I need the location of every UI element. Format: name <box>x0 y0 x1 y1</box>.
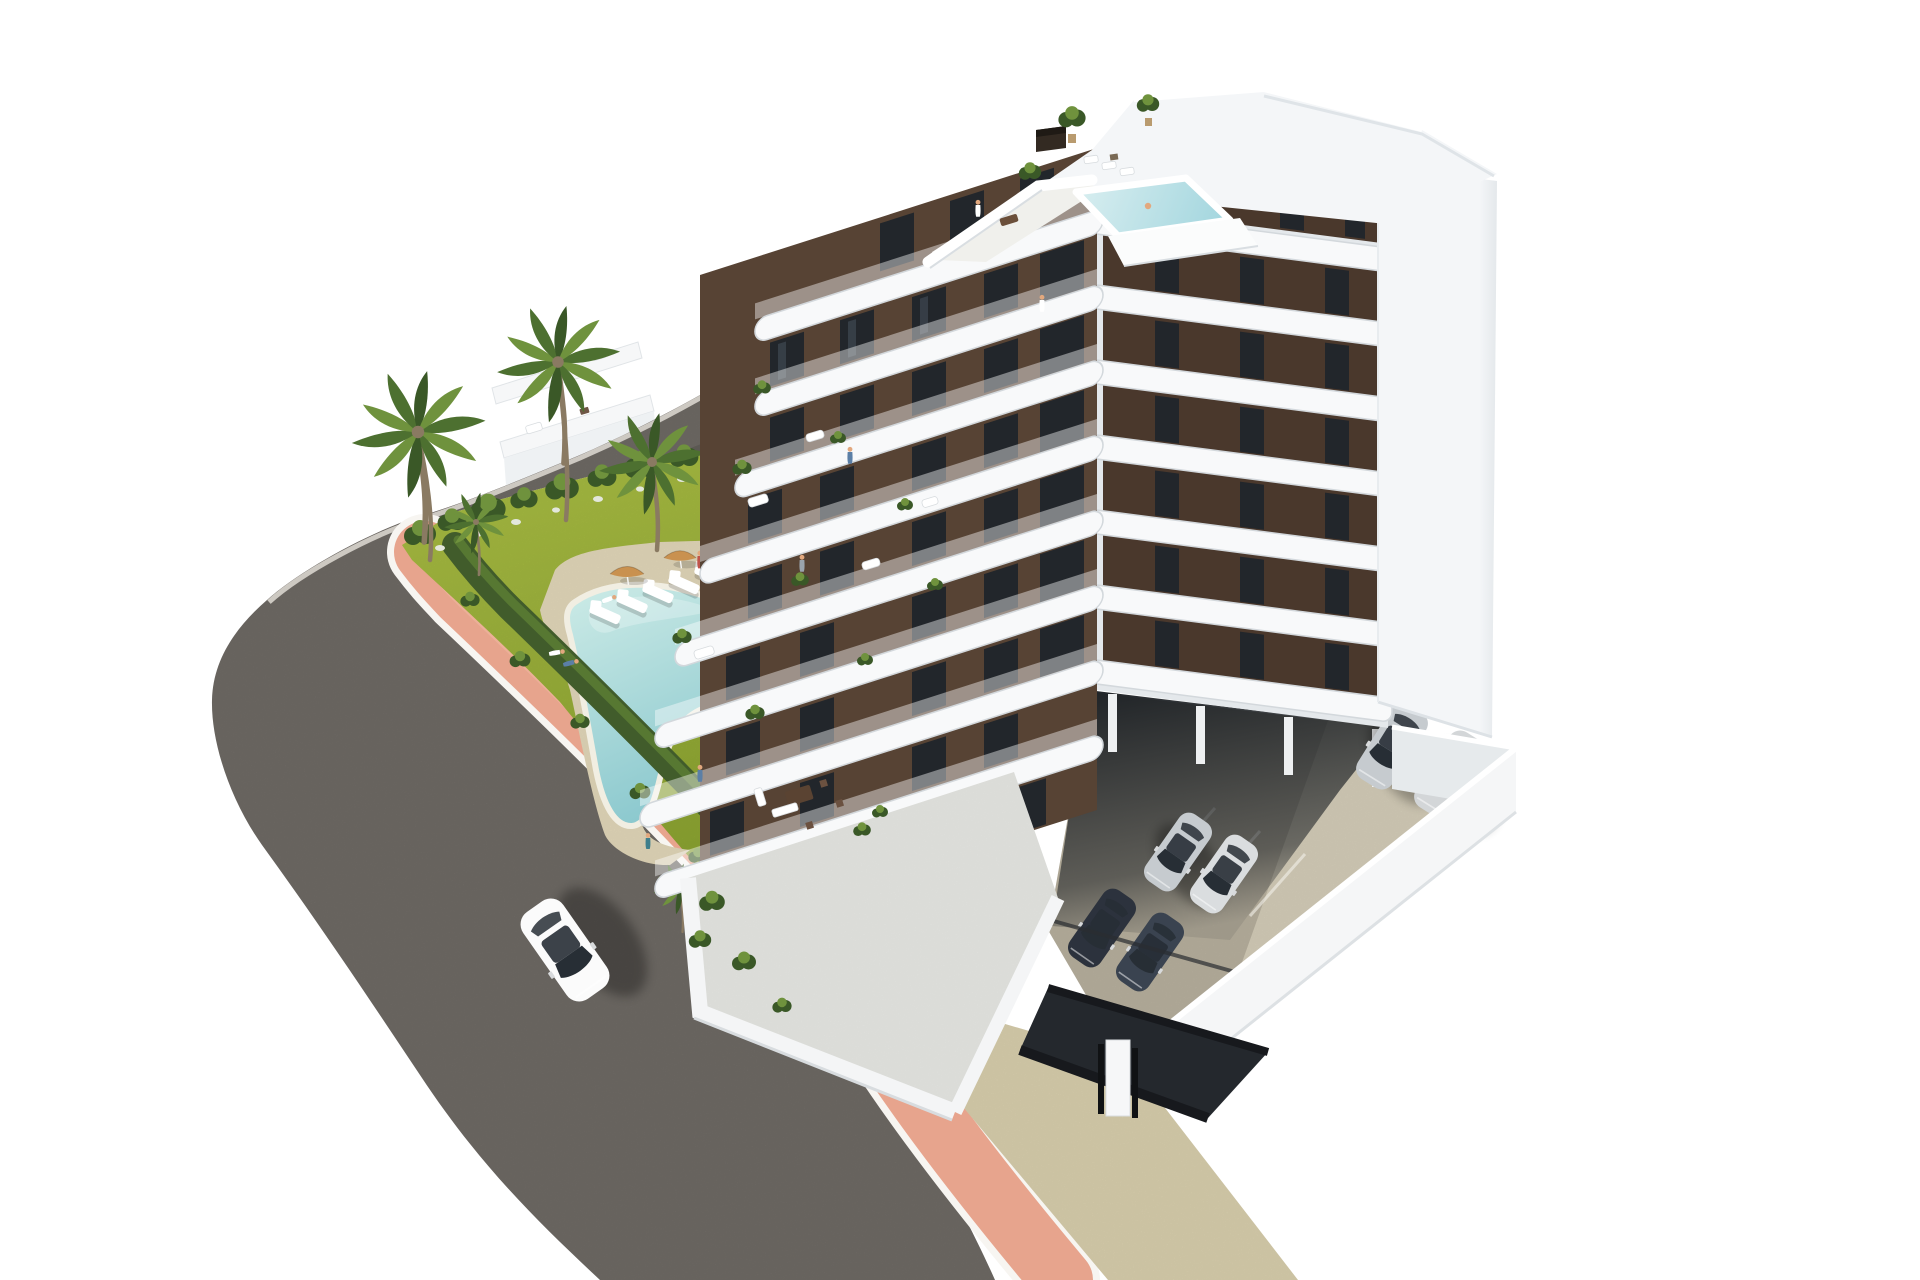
ramp-post-2 <box>1132 1048 1138 1118</box>
rooftop-person <box>975 200 980 217</box>
render-canvas: Aerial 3D architectural rendering of a m… <box>0 0 1920 1280</box>
ramp-pillar <box>1106 1040 1130 1116</box>
rooftop-chimney <box>1036 126 1066 152</box>
corner-tower <box>1378 155 1497 737</box>
ramp-post-1 <box>1098 1044 1104 1114</box>
architectural-render <box>0 0 1920 1280</box>
rooftop-swimmer <box>1145 203 1151 209</box>
